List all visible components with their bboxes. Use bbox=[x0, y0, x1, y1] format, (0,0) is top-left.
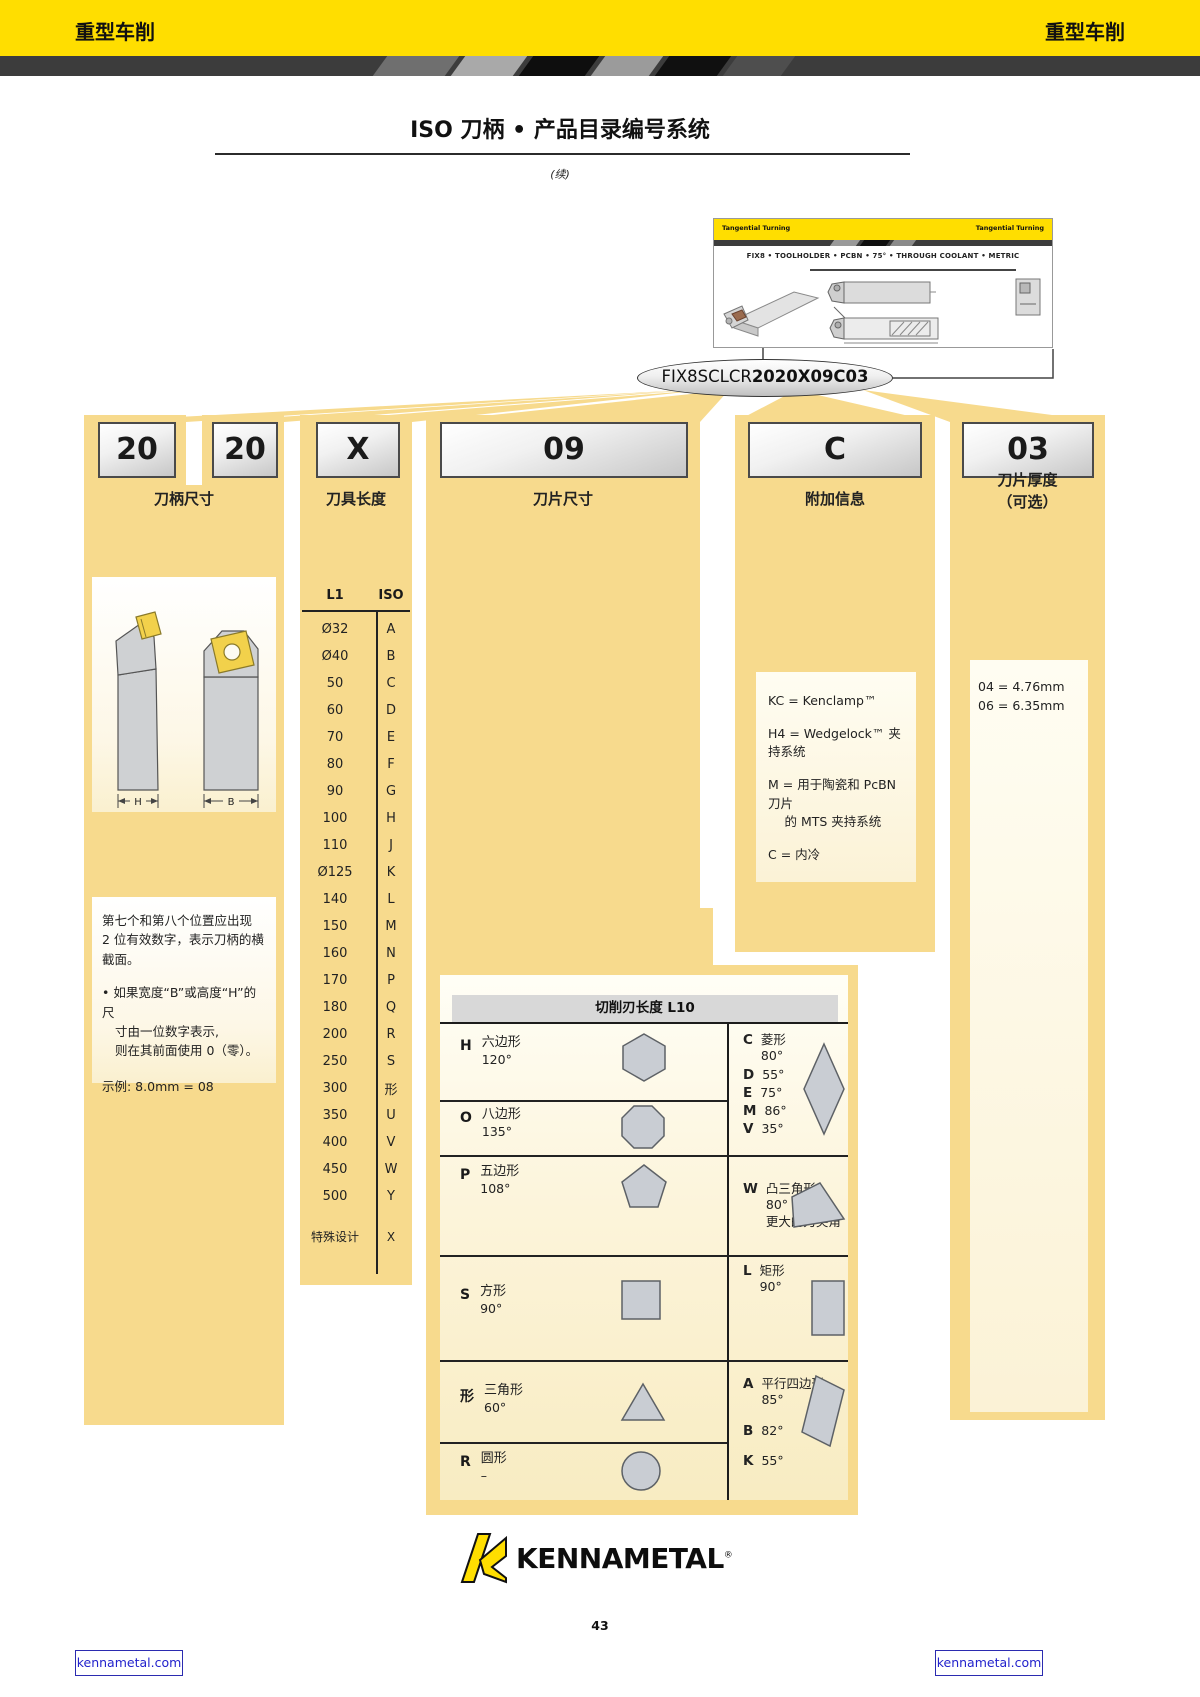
card-tab-right: Tangential Turning bbox=[976, 224, 1044, 232]
length-table-header: L1 ISO bbox=[300, 588, 412, 610]
shank-note-box: 第七个和第八个位置应出现 2 位有效数字，表示刀柄的横 截面。 • 如果宽度“B… bbox=[92, 897, 276, 1083]
l1-value: 70 bbox=[300, 730, 370, 745]
length-table-row: 70E bbox=[300, 724, 412, 751]
insert-shape-text: 矩形90° bbox=[760, 1263, 785, 1296]
insert-angle: 82° bbox=[761, 1423, 783, 1439]
divider-stripe bbox=[0, 56, 1200, 76]
shank-note-line: 2 位有效数字，表示刀柄的横 bbox=[102, 930, 268, 949]
l1-value: Ø40 bbox=[300, 649, 370, 664]
length-table-row: 90G bbox=[300, 778, 412, 805]
shank-note-line: 截面。 bbox=[102, 950, 268, 969]
thickness-options-box: 04 = 4.76mm06 = 6.35mm bbox=[970, 660, 1088, 1412]
stripe-segment bbox=[370, 56, 462, 76]
part-number-code: 2020X09C03 bbox=[752, 367, 869, 386]
insert-shape-text: 五边形108° bbox=[480, 1163, 519, 1255]
stripe-segment bbox=[652, 56, 734, 76]
dim-label-b: B bbox=[228, 797, 235, 808]
page-title: ISO 刀柄 • 产品目录编号系统 bbox=[160, 112, 960, 144]
insert-shape-text: 圆形– bbox=[481, 1450, 507, 1500]
insert-row-square: S方形90° bbox=[440, 1255, 727, 1360]
length-table-row: Ø32A bbox=[300, 616, 412, 643]
product-card: Tangential Turning Tangential Turning FI… bbox=[713, 218, 1053, 348]
insert-row-hexagon: H六边形120° bbox=[440, 1024, 727, 1100]
row-line bbox=[440, 1360, 848, 1362]
l1-value: 90 bbox=[300, 784, 370, 799]
stripe-segment bbox=[888, 240, 917, 246]
insert-shape-text: 八边形135° bbox=[482, 1106, 521, 1155]
length-table-rule bbox=[302, 610, 410, 612]
insert-letter: D bbox=[743, 1067, 754, 1083]
l1-value: 150 bbox=[300, 919, 370, 934]
stripe-segment bbox=[858, 240, 891, 246]
catalog-page: 重型车削 重型车削 ISO 刀柄 • 产品目录编号系统 (续) Tangenti… bbox=[0, 0, 1200, 1697]
insert-angle: 75° bbox=[760, 1085, 782, 1101]
insert-shape-text: 三角形60° bbox=[484, 1382, 523, 1442]
l1-value: 160 bbox=[300, 946, 370, 961]
insert-row-triangle: 形三角形60° bbox=[440, 1360, 727, 1442]
insert-row-pentagon: P五边形108° bbox=[440, 1155, 727, 1255]
continued-label: (续) bbox=[160, 166, 960, 182]
insert-table-left-column: H六边形120°O八边形135°P五边形108°S方形90°形三角形60°R圆形… bbox=[440, 1024, 727, 1500]
insert-shape-text: 菱形80° bbox=[761, 1032, 786, 1065]
row-line bbox=[440, 1442, 727, 1444]
length-table-row: 50C bbox=[300, 670, 412, 697]
row-line bbox=[440, 1100, 727, 1102]
card-tab-left: Tangential Turning bbox=[722, 224, 790, 232]
extra-info-note: M = 用于陶瓷和 PcBN 刀片 的 MTS 夹持系统 bbox=[768, 776, 908, 830]
section-label-right: 重型车削 bbox=[1045, 16, 1125, 45]
l1-value: 100 bbox=[300, 811, 370, 826]
l1-value: 110 bbox=[300, 838, 370, 853]
l1-value: Ø32 bbox=[300, 622, 370, 637]
trigon-icon bbox=[790, 1181, 846, 1232]
length-table-row: 300形 bbox=[300, 1075, 412, 1102]
l1-value: 80 bbox=[300, 757, 370, 772]
insert-row-parallelogram: A平行四边形85°B82°K55° bbox=[729, 1360, 848, 1500]
thickness-option: 06 = 6.35mm bbox=[978, 697, 1084, 716]
pentagon-icon bbox=[620, 1163, 668, 1213]
part-number-prefix: FIX8SCLCR bbox=[661, 367, 751, 386]
l1-value: 350 bbox=[300, 1108, 370, 1123]
kennametal-k-icon bbox=[452, 1532, 510, 1584]
l1-value: 450 bbox=[300, 1162, 370, 1177]
l1-value: 200 bbox=[300, 1027, 370, 1042]
insert-angle: 35° bbox=[761, 1121, 783, 1137]
extra-info-note: C = 内冷 bbox=[768, 846, 908, 864]
label-insert-thickness-line1: 刀片厚度 bbox=[950, 470, 1105, 492]
length-table-row: Ø40B bbox=[300, 643, 412, 670]
insert-letter: P bbox=[460, 1167, 470, 1255]
section-label-left: 重型车削 bbox=[75, 16, 155, 45]
length-table-row: 60D bbox=[300, 697, 412, 724]
l1-value: 50 bbox=[300, 676, 370, 691]
parallelogram-icon bbox=[800, 1374, 846, 1451]
insert-shape-text: 六边形120° bbox=[482, 1034, 521, 1100]
insert-letter: H bbox=[460, 1038, 472, 1100]
length-table-row: 80F bbox=[300, 751, 412, 778]
length-table-row: 200R bbox=[300, 1021, 412, 1048]
stripe-segment bbox=[720, 56, 798, 76]
length-table-row: 350U bbox=[300, 1102, 412, 1129]
label-insert-thickness-line2: （可选） bbox=[950, 492, 1105, 514]
l1-value: 60 bbox=[300, 703, 370, 718]
shank-diagram: H B bbox=[92, 577, 276, 812]
code-box-shank-width: 20 bbox=[212, 422, 278, 478]
thickness-option: 04 = 4.76mm bbox=[978, 678, 1084, 697]
diamond-icon bbox=[802, 1042, 846, 1139]
insert-row-trigon: W凸三角形80°更大的刀尖角 bbox=[729, 1155, 848, 1255]
label-extra-info: 附加信息 bbox=[735, 488, 935, 509]
shank-bullet-line: 寸由一位数字表示, bbox=[102, 1022, 268, 1041]
registered-mark: ® bbox=[724, 1550, 733, 1560]
length-table-rows: Ø32AØ40B50C60D70E80F90G100H110JØ125K140L… bbox=[300, 616, 412, 1250]
length-table-row: 160N bbox=[300, 940, 412, 967]
insert-row-octagon: O八边形135° bbox=[440, 1100, 727, 1155]
code-box-extra-info: C bbox=[748, 422, 922, 478]
hexagon-icon bbox=[620, 1032, 668, 1086]
length-table-row: 500Y bbox=[300, 1183, 412, 1210]
length-table: L1 ISO Ø32AØ40B50C60D70E80F90G100H110JØ1… bbox=[300, 588, 412, 1250]
insert-angle: 86° bbox=[764, 1103, 786, 1119]
length-table-row: 100H bbox=[300, 805, 412, 832]
insert-entry: K55° bbox=[743, 1453, 848, 1469]
shank-diagram-box: H B bbox=[92, 577, 276, 812]
stripe-segment bbox=[588, 56, 666, 76]
stripe-segment bbox=[448, 56, 530, 76]
part-number-callout: FIX8SCLCR2020X09C03 bbox=[637, 359, 893, 397]
shank-bullet-line: • 如果宽度“B”或高度“H”的尺 bbox=[102, 983, 268, 1022]
insert-letter: K bbox=[743, 1453, 753, 1469]
label-insert-size: 刀片尺寸 bbox=[426, 488, 700, 509]
l1-value: 180 bbox=[300, 1000, 370, 1015]
length-table-row: Ø125K bbox=[300, 859, 412, 886]
label-insert-thickness: 刀片厚度 （可选） bbox=[950, 470, 1105, 514]
insert-letter: 形 bbox=[460, 1386, 474, 1442]
card-header-bar: Tangential Turning Tangential Turning bbox=[714, 219, 1052, 240]
insert-letter: L bbox=[743, 1263, 752, 1296]
l1-value: 250 bbox=[300, 1054, 370, 1069]
extra-info-note: H4 = Wedgelock™ 夹持系统 bbox=[768, 725, 908, 761]
l1-value: 300 bbox=[300, 1081, 370, 1096]
label-shank-size: 刀柄尺寸 bbox=[84, 488, 284, 509]
row-line bbox=[440, 1255, 848, 1257]
triangle-icon bbox=[620, 1382, 666, 1426]
insert-letter: W bbox=[743, 1181, 758, 1230]
insert-table: 切削刃长度 L10 H六边形120°O八边形135°P五边形108°S方形90°… bbox=[440, 975, 848, 1500]
toolholder-drawings bbox=[714, 274, 1054, 346]
insert-row-circle: R圆形– bbox=[440, 1442, 727, 1500]
kennametal-wordmark: KENNAMETAL® bbox=[516, 1542, 732, 1575]
kennametal-link-right[interactable]: kennametal.com bbox=[935, 1650, 1043, 1676]
column-insert-size-stub bbox=[426, 908, 713, 967]
length-table-row: 180Q bbox=[300, 994, 412, 1021]
l1-value: Ø125 bbox=[300, 865, 370, 880]
insert-angle: 55° bbox=[762, 1067, 784, 1083]
code-box-shank-height: 20 bbox=[98, 422, 176, 478]
page-number: 43 bbox=[0, 1618, 1200, 1633]
insert-row-diamond: C菱形80°D55°E75°M86°V35° bbox=[729, 1024, 848, 1155]
insert-letter: A bbox=[743, 1376, 753, 1409]
insert-table-title: 切削刃长度 L10 bbox=[452, 995, 838, 1022]
insert-letter: B bbox=[743, 1423, 753, 1439]
length-table-divider bbox=[376, 612, 378, 1274]
insert-letter: V bbox=[743, 1121, 753, 1137]
length-table-special-row: 特殊设计X bbox=[300, 1223, 412, 1250]
l1-value: 500 bbox=[300, 1189, 370, 1204]
insert-letter: R bbox=[460, 1454, 471, 1500]
length-table-row: 110J bbox=[300, 832, 412, 859]
length-table-col1: L1 bbox=[300, 588, 370, 610]
shank-example: 示例: 8.0mm = 08 bbox=[102, 1077, 268, 1096]
card-rule bbox=[810, 269, 1016, 271]
title-rule bbox=[215, 153, 910, 155]
insert-angle: 55° bbox=[761, 1453, 783, 1469]
insert-letter: E bbox=[743, 1085, 752, 1101]
kennametal-link-left[interactable]: kennametal.com bbox=[75, 1650, 183, 1676]
insert-letter: M bbox=[743, 1103, 756, 1119]
row-line bbox=[440, 1155, 848, 1157]
octagon-icon bbox=[620, 1104, 666, 1154]
length-table-row: 170P bbox=[300, 967, 412, 994]
length-table-row: 140L bbox=[300, 886, 412, 913]
insert-shape-text: 方形90° bbox=[480, 1283, 506, 1360]
card-subtitle: FIX8 • TOOLHOLDER • PCBN • 75° • THROUGH… bbox=[714, 252, 1052, 260]
insert-letter: S bbox=[460, 1287, 470, 1360]
circle-icon bbox=[620, 1450, 662, 1496]
shank-note-line: 第七个和第八个位置应出现 bbox=[102, 911, 268, 930]
length-table-row: 250S bbox=[300, 1048, 412, 1075]
stripe-segment bbox=[828, 240, 861, 246]
length-table-row: 450W bbox=[300, 1156, 412, 1183]
insert-letter: C bbox=[743, 1032, 753, 1065]
insert-table-right-column: C菱形80°D55°E75°M86°V35°W凸三角形80°更大的刀尖角L矩形9… bbox=[729, 1024, 848, 1500]
shank-bullet-line: 则在其前面使用 0（零）。 bbox=[102, 1041, 268, 1060]
card-stripe bbox=[714, 240, 1052, 246]
stripe-segment bbox=[516, 56, 602, 76]
l1-value: 170 bbox=[300, 973, 370, 988]
top-banner: 重型车削 重型车削 bbox=[0, 0, 1200, 56]
rectangle-icon bbox=[810, 1279, 846, 1340]
length-table-row: 150M bbox=[300, 913, 412, 940]
extra-info-box: KC = Kenclamp™H4 = Wedgelock™ 夹持系统M = 用于… bbox=[756, 672, 916, 882]
code-box-length: X bbox=[316, 422, 400, 478]
dim-label-h: H bbox=[134, 797, 142, 808]
length-table-row: 400V bbox=[300, 1129, 412, 1156]
extra-info-note: KC = Kenclamp™ bbox=[768, 692, 908, 710]
insert-letter: O bbox=[460, 1110, 472, 1155]
label-tool-length: 刀具长度 bbox=[300, 488, 412, 509]
kennametal-logo: KENNAMETAL® bbox=[452, 1532, 732, 1584]
l1-value: 特殊设计 bbox=[300, 1228, 370, 1245]
l1-value: 140 bbox=[300, 892, 370, 907]
code-box-insert-size: 09 bbox=[440, 422, 688, 478]
square-icon bbox=[620, 1279, 662, 1325]
l1-value: 400 bbox=[300, 1135, 370, 1150]
length-table-col2: ISO bbox=[370, 588, 412, 610]
insert-row-rectangle: L矩形90° bbox=[729, 1255, 848, 1360]
